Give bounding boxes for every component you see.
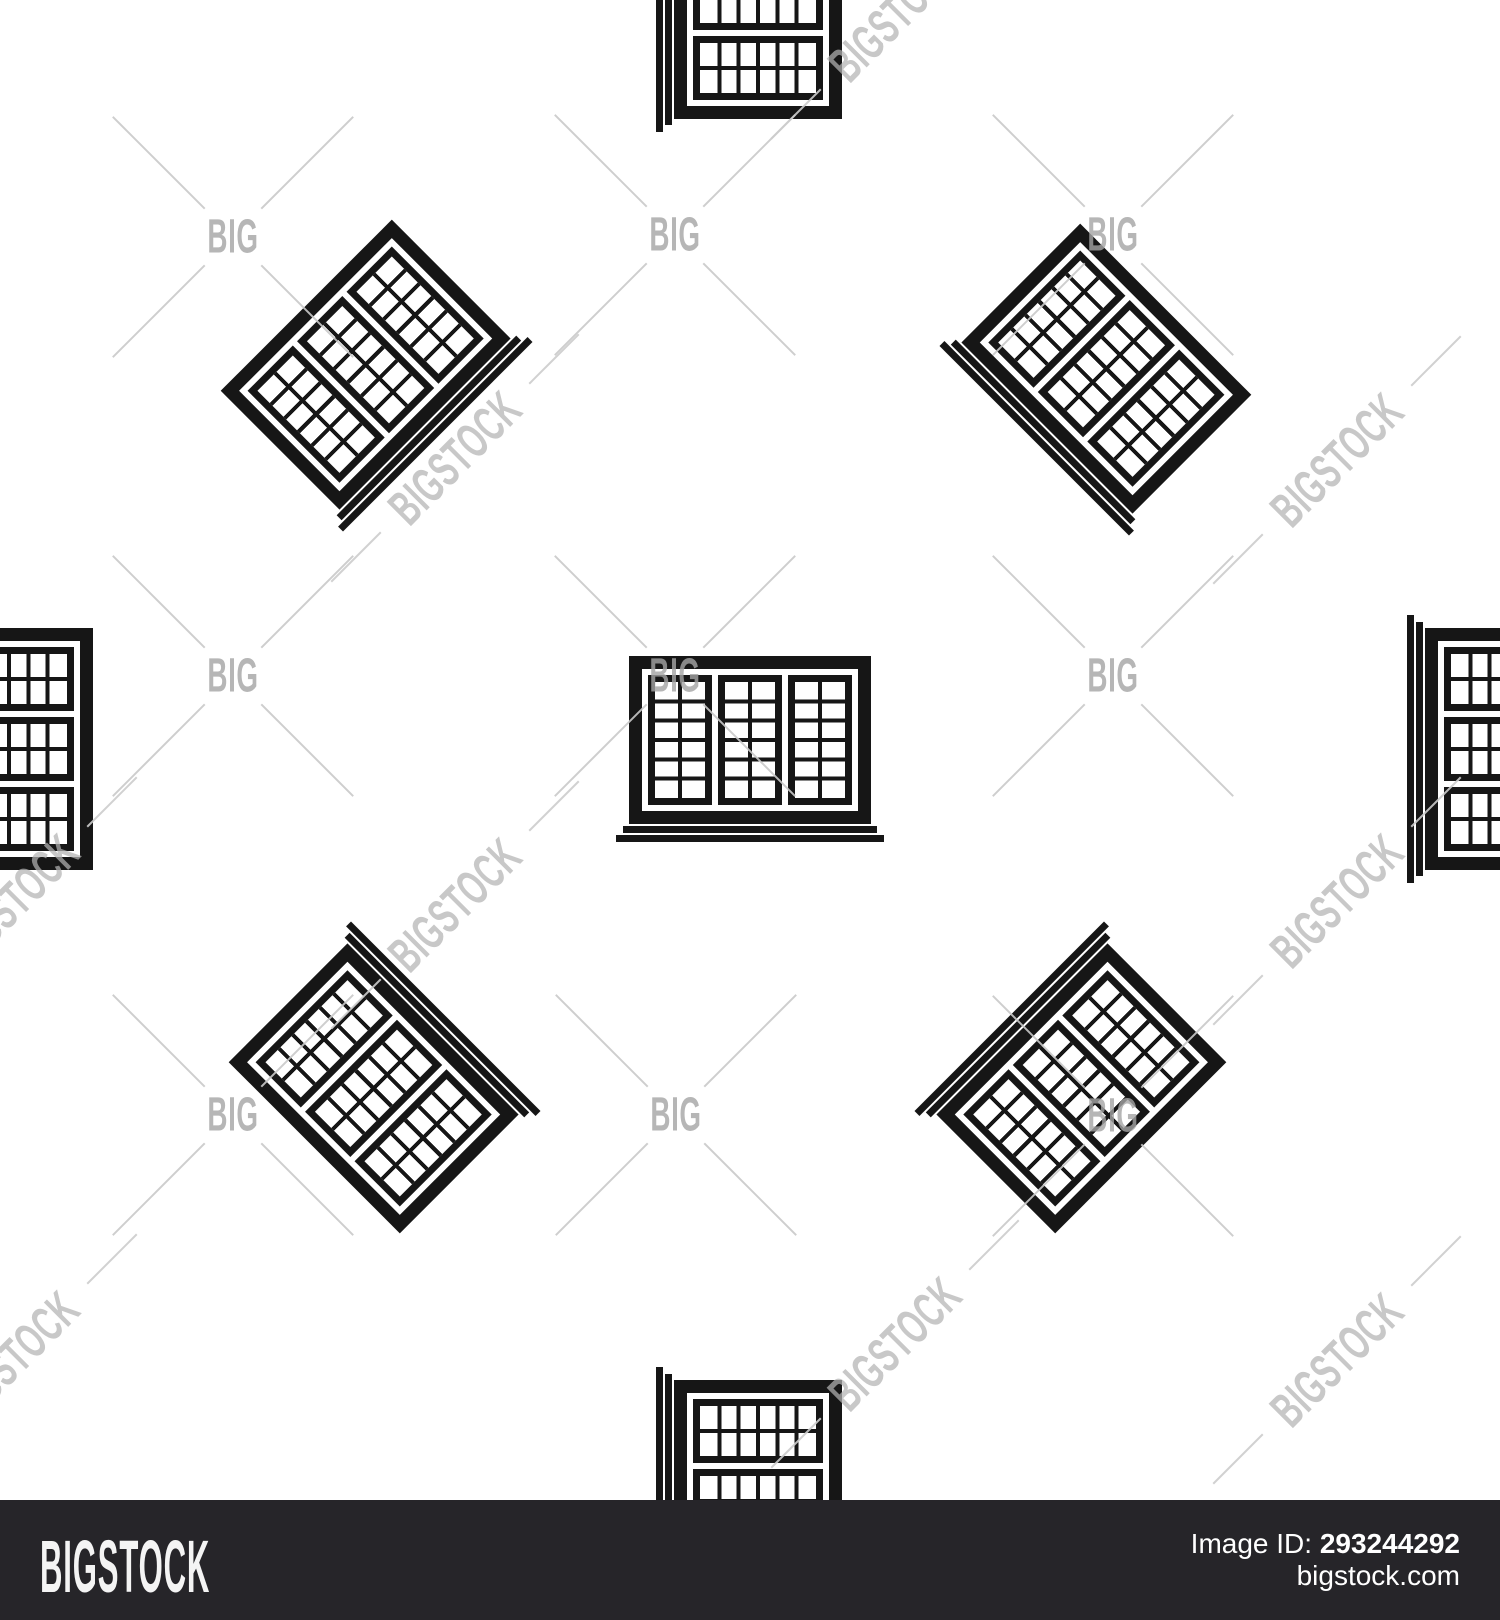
bigstock-logo: BIGSTOCK: [40, 1530, 210, 1604]
website-url: bigstock.com: [1297, 1562, 1460, 1590]
window-pane: [718, 675, 782, 805]
window-icon: [656, 0, 842, 119]
window-icon: [221, 220, 524, 523]
window-sill: [616, 835, 884, 842]
window-pane: [788, 675, 852, 805]
image-id: Image ID: 293244292: [1191, 1530, 1460, 1558]
image-id-label: Image ID:: [1191, 1528, 1312, 1559]
window-icon: [229, 931, 532, 1234]
window-icon: [924, 931, 1227, 1234]
footer-bar: BIGSTOCK Image ID: 293244292 bigstock.co…: [0, 1500, 1500, 1620]
stock-image-preview: BIG BIG BIG BIG BIG BIG BIG BIG BIG BIGS…: [0, 0, 1500, 1620]
window-sill: [623, 826, 877, 833]
image-id-value: 293244292: [1320, 1528, 1460, 1559]
window-icon: [949, 224, 1252, 527]
window-icon: [1407, 628, 1500, 870]
